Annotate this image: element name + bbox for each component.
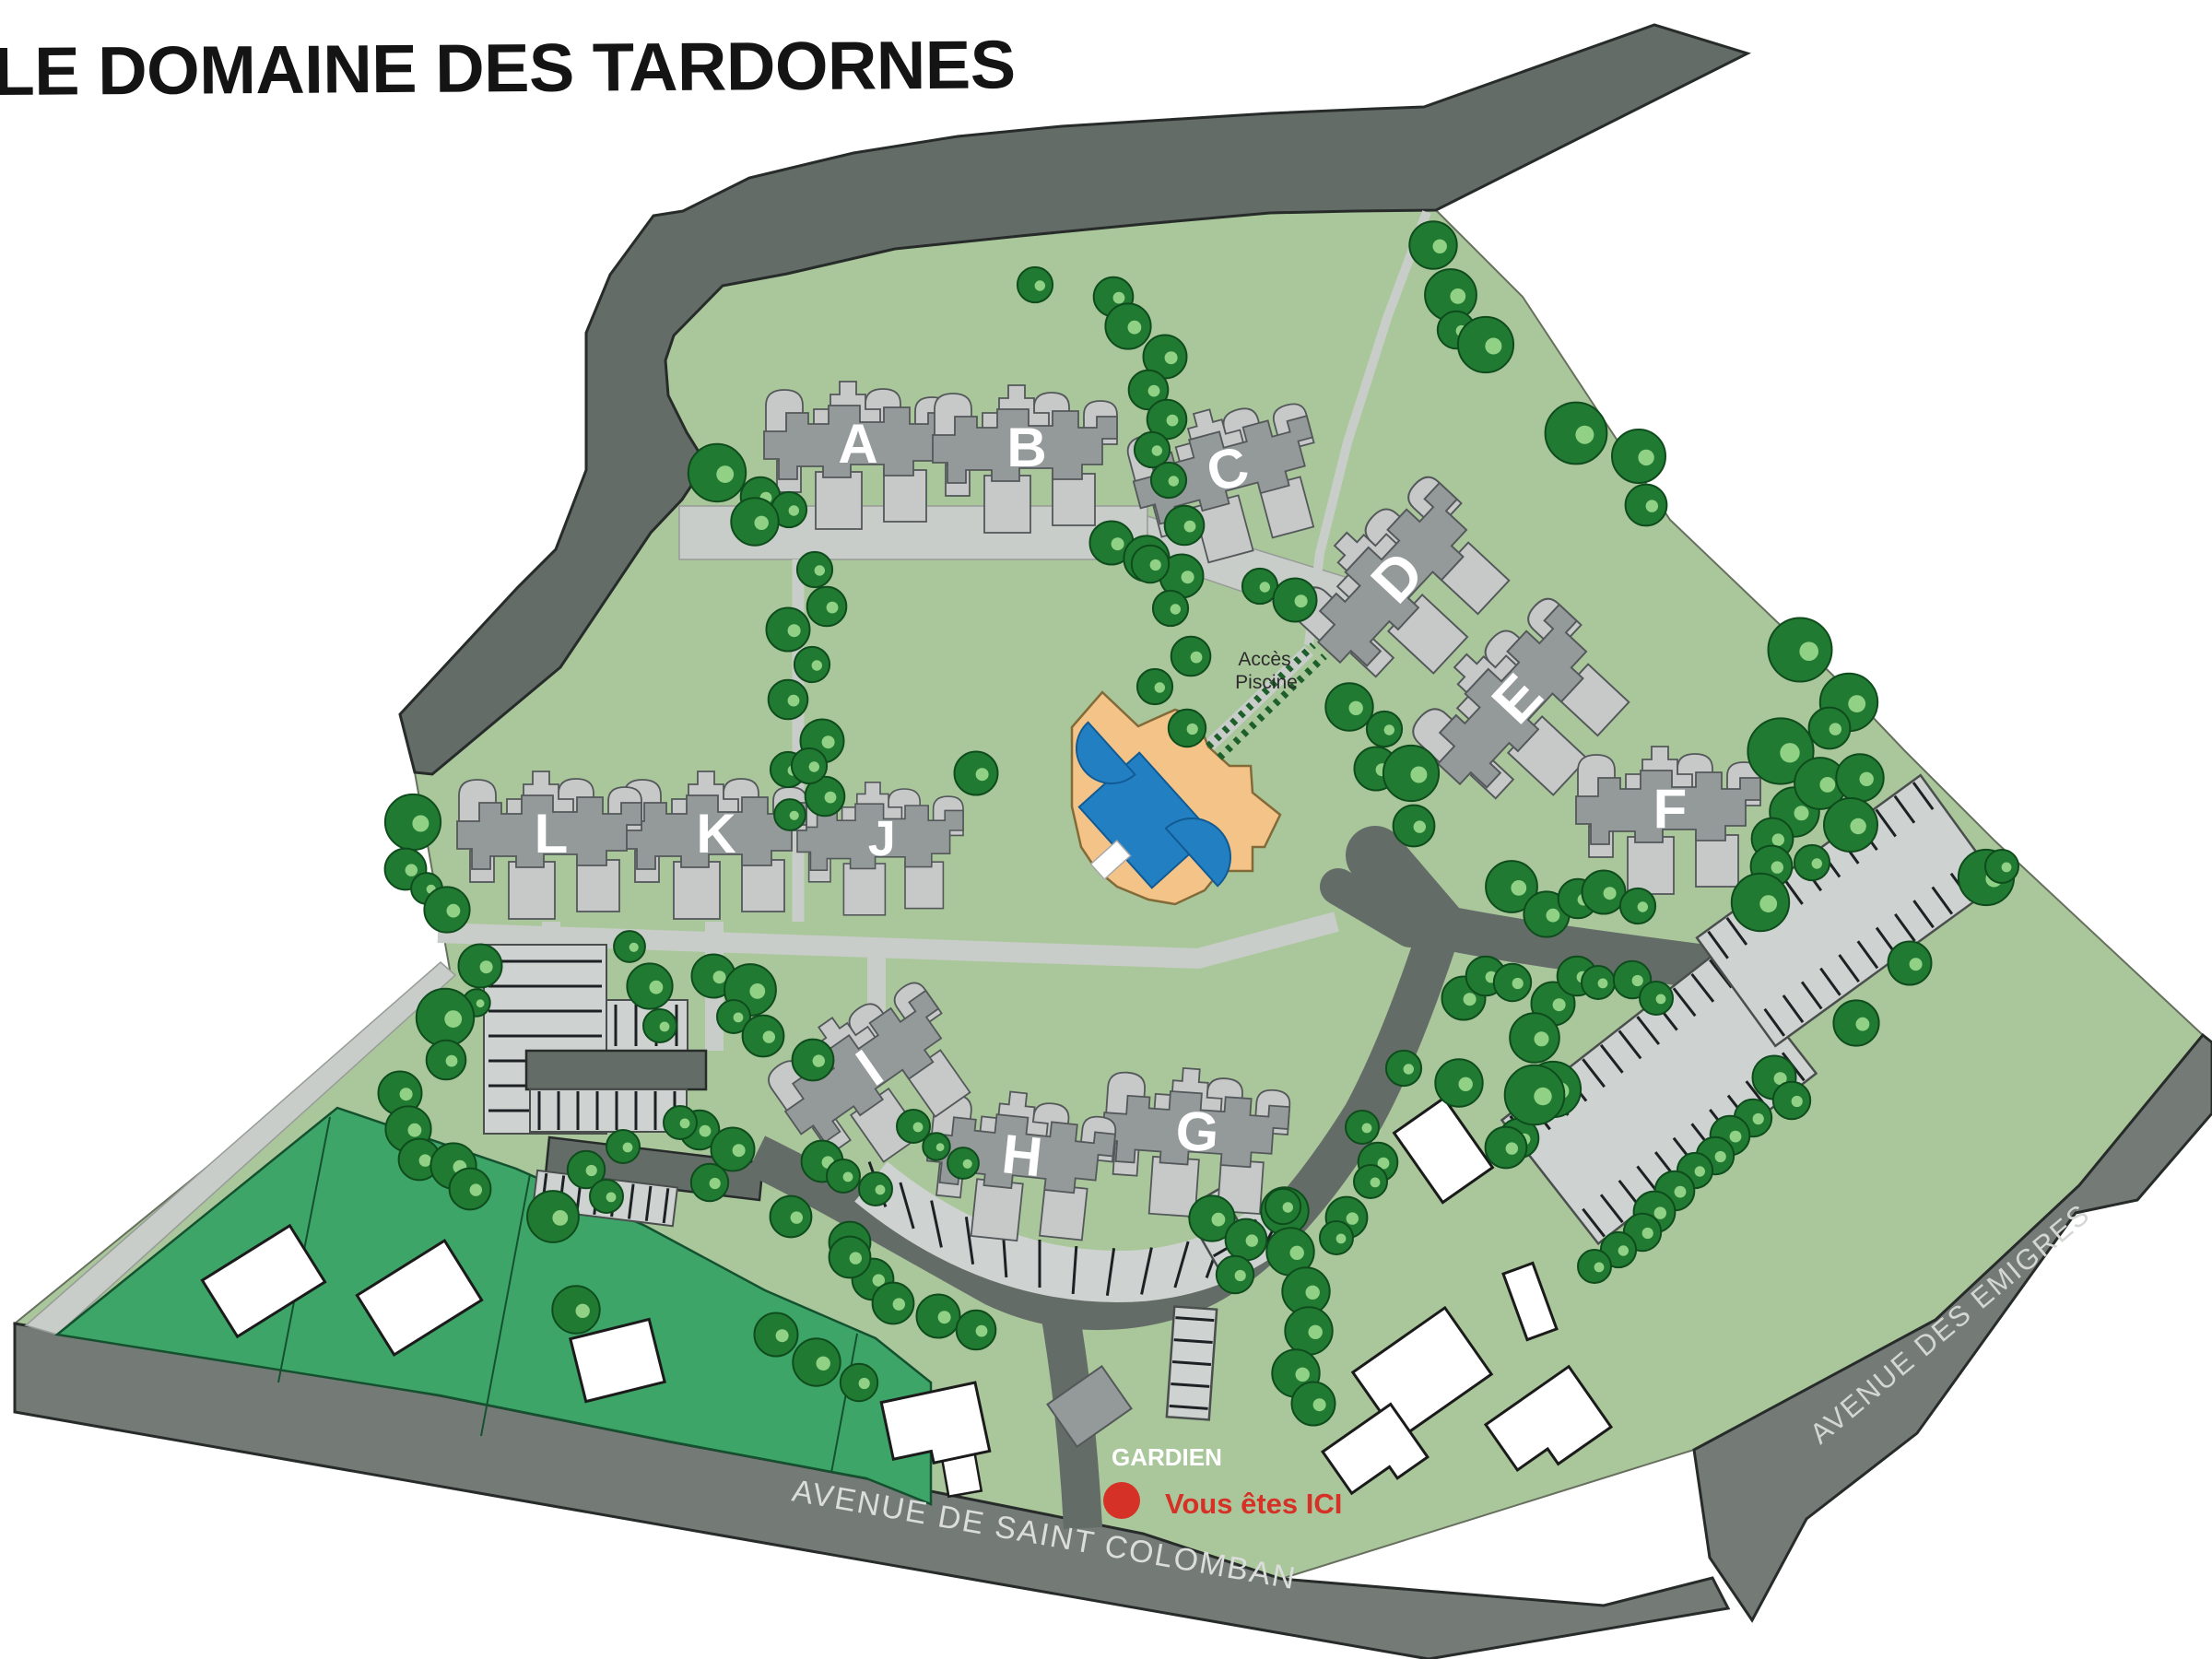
svg-text:Accès: Accès <box>1238 649 1290 670</box>
svg-text:F: F <box>1653 778 1688 840</box>
svg-text:Piscine: Piscine <box>1235 672 1298 693</box>
svg-text:K: K <box>696 803 735 865</box>
svg-text:G: G <box>1173 1100 1220 1164</box>
svg-text:J: J <box>868 811 896 866</box>
svg-text:A: A <box>838 413 877 475</box>
svg-text:L: L <box>535 803 569 865</box>
svg-text:GARDIEN: GARDIEN <box>1112 1443 1222 1471</box>
svg-text:LE DOMAINE DES TARDORNES: LE DOMAINE DES TARDORNES <box>0 26 1016 110</box>
svg-text:Vous êtes ICI: Vous êtes ICI <box>1165 1488 1342 1520</box>
svg-text:B: B <box>1006 417 1046 478</box>
svg-text:H: H <box>999 1123 1045 1188</box>
